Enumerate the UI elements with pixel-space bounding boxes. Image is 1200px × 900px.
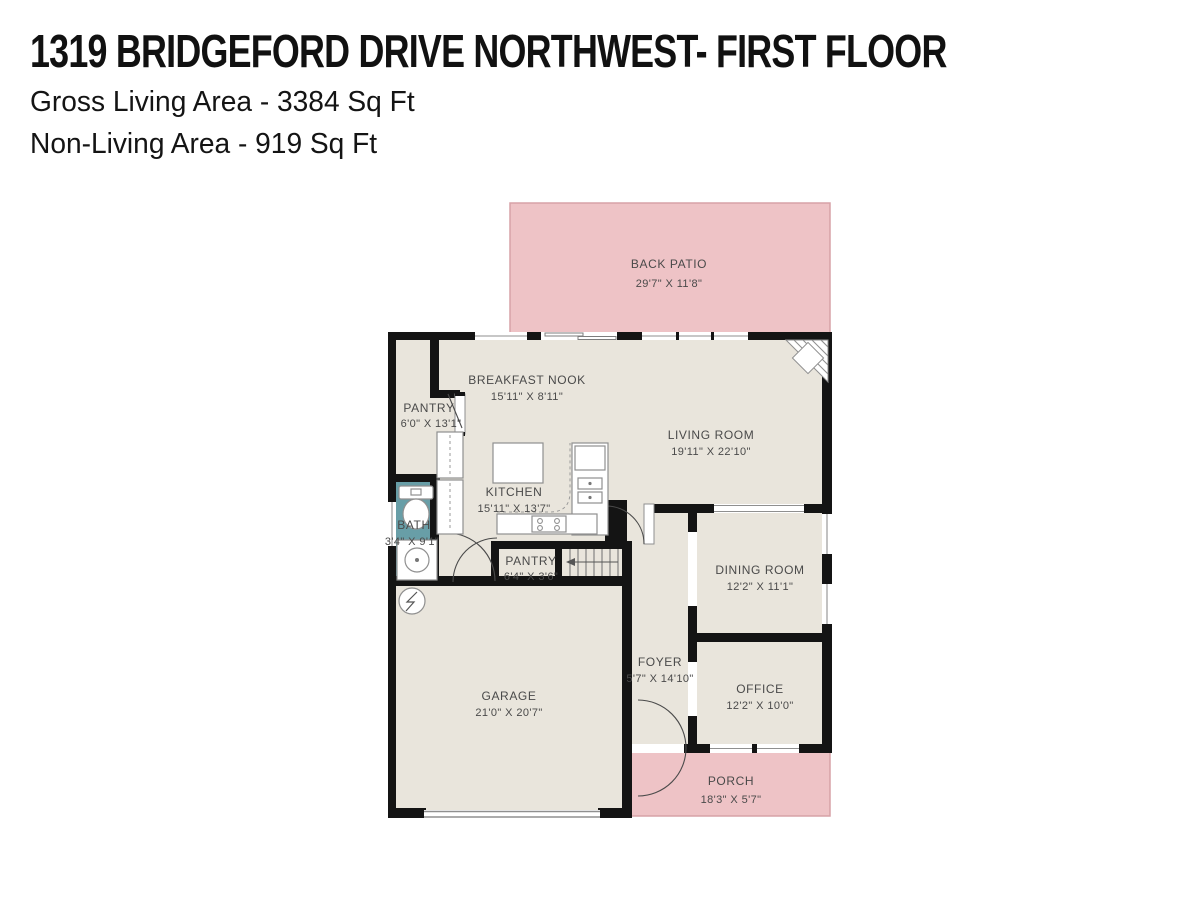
foyer-dims: 5'7" X 14'10" [626, 673, 693, 685]
dining-room-dims: 12'2" X 11'1" [727, 581, 794, 593]
kitchen-fixtures [437, 432, 608, 535]
garage-door [424, 810, 600, 818]
porch-dims: 18'3" X 5'7" [701, 794, 762, 806]
living-room-dims: 19'11" X 22'10" [671, 446, 751, 458]
porch-label: PORCH [708, 774, 754, 788]
window [822, 584, 832, 624]
kitchen-label: KITCHEN [486, 485, 543, 499]
office-door-opening [688, 662, 697, 716]
garage-label: GARAGE [482, 689, 537, 703]
pantry-cabinets [437, 432, 463, 534]
breakfast-nook-dims: 15'11" X 8'11" [491, 391, 563, 403]
garage-dims: 21'0" X 20'7" [475, 707, 542, 719]
floor-plan: BACK PATIO 29'7" X 11'8" PORCH 18'3" X 5… [0, 0, 1200, 900]
garage-floor [392, 744, 624, 814]
kitchen-door-jamb [644, 504, 654, 544]
window [475, 332, 527, 340]
kitchen-dims: 15'11" X 13'7" [477, 503, 550, 515]
dining-room-label: DINING ROOM [715, 563, 804, 577]
window [642, 332, 748, 340]
breakfast-nook-label: BREAKFAST NOOK [468, 373, 586, 387]
water-heater-icon [399, 588, 425, 614]
pantry-lower-label: PANTRY [505, 554, 556, 568]
back-patio-dims: 29'7" X 11'8" [636, 278, 703, 290]
sliding-door [541, 332, 617, 340]
back-patio-label: BACK PATIO [631, 257, 707, 271]
cased-opening [688, 532, 697, 606]
window [822, 514, 832, 554]
fridge-icon [575, 446, 605, 470]
pantry-upper-dims: 6'0" X 13'1" [401, 418, 462, 430]
bath-label: BATH [397, 518, 431, 532]
cased-opening [714, 504, 804, 513]
porch-area: PORCH 18'3" X 5'7" [628, 752, 830, 816]
stove-icon [532, 516, 566, 532]
office-label: OFFICE [736, 682, 784, 696]
living-room-label: LIVING ROOM [668, 428, 755, 442]
window [757, 744, 799, 753]
bath-dims: 3'4" X 9'1" [385, 536, 439, 548]
kitchen-island [493, 443, 543, 483]
back-patio-area: BACK PATIO 29'7" X 11'8" [510, 203, 830, 333]
pantry-lower-dims: 6'4" X 3'6" [504, 571, 558, 583]
window [710, 744, 752, 753]
front-door-opening [632, 744, 684, 753]
office-dims: 12'2" X 10'0" [726, 700, 793, 712]
pantry-upper-label: PANTRY [403, 401, 454, 415]
foyer-label: FOYER [638, 655, 682, 669]
